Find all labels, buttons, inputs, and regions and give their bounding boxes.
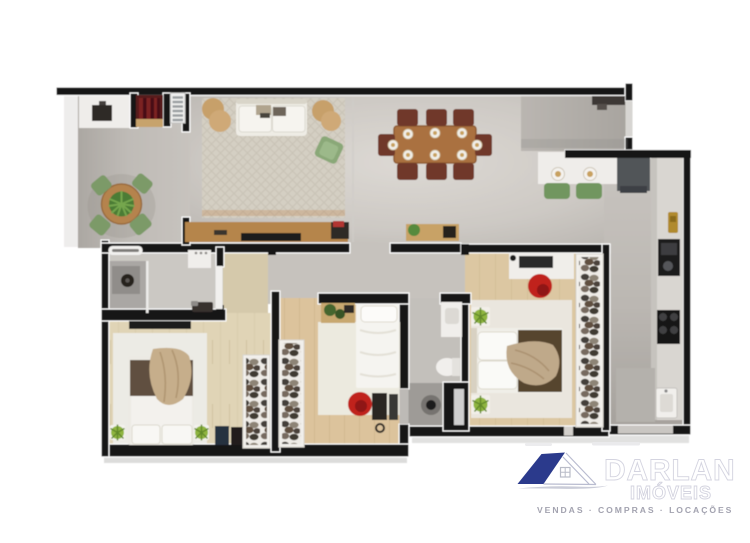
svg-text:IMÓVEIS: IMÓVEIS bbox=[630, 482, 712, 503]
svg-text:VENDAS · COMPRAS · LOCAÇÕES: VENDAS · COMPRAS · LOCAÇÕES bbox=[537, 505, 733, 515]
